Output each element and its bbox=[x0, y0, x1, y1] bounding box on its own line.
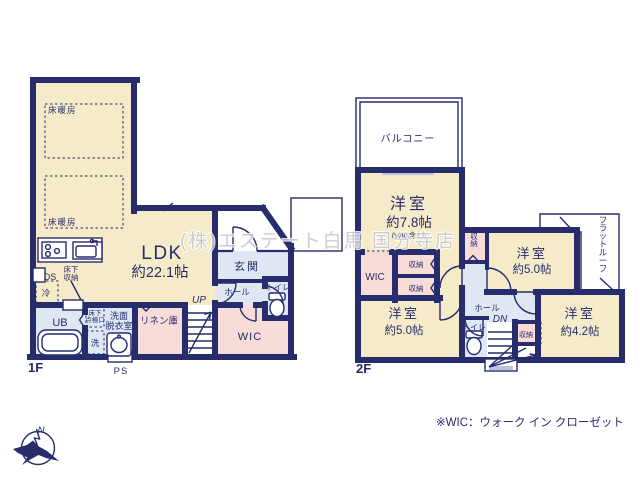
label-underfloor-storage-2: 収納 bbox=[64, 272, 79, 282]
label-linen: リネン庫 bbox=[140, 315, 179, 327]
kitchen-counter bbox=[38, 238, 102, 262]
label-ldk-size: 約22.1帖 bbox=[131, 264, 188, 281]
label-room42-size: 約4.2帖 bbox=[561, 324, 600, 338]
label-washroom-2: 脱衣室 bbox=[105, 320, 132, 331]
label-hall-1f: ホール bbox=[224, 287, 250, 297]
label-genkan: 玄関 bbox=[234, 259, 260, 273]
label-fridge: 冷 bbox=[42, 288, 51, 298]
washbasin-icon bbox=[107, 333, 131, 356]
label-1f: 1F bbox=[28, 360, 43, 375]
label-washer: 洗 bbox=[91, 338, 100, 348]
label-room50a-size: 約5.0帖 bbox=[513, 262, 552, 276]
label-ub: UB bbox=[52, 317, 67, 329]
label-ldk: LDK bbox=[141, 243, 182, 264]
label-toilet-1f: トイレ bbox=[266, 283, 290, 292]
compass-bird bbox=[13, 441, 59, 466]
compass-icon: N bbox=[13, 425, 59, 465]
label-room78-size: 約7.8帖 bbox=[386, 215, 432, 230]
label-room50a: 洋室 bbox=[516, 246, 547, 261]
room-linen bbox=[135, 305, 185, 357]
underfloor-storage-hatch bbox=[63, 300, 83, 310]
label-inspection-1: 床下 bbox=[89, 308, 103, 317]
watermark: (株)エステート白馬 国分寺店 bbox=[180, 230, 456, 252]
label-balcony: バルコニー bbox=[381, 133, 436, 145]
label-inspection-2: 点検口 bbox=[85, 315, 105, 324]
label-ds: DS bbox=[44, 272, 57, 282]
room-50a bbox=[487, 230, 577, 292]
label-2f: 2F bbox=[356, 361, 371, 376]
floor-plan-drawing: 床暖房 床暖房 LDK 約22.1帖 DS 床下 収納 冷 UB 床下 点検口 … bbox=[0, 0, 640, 480]
legend-note: ※WIC：ウォーク イン クローゼット bbox=[436, 416, 624, 429]
label-stairs-up: UP bbox=[192, 295, 206, 306]
label-washroom-1: 洗面 bbox=[110, 310, 128, 321]
compass-north-label: N bbox=[38, 425, 45, 436]
bathtub-icon bbox=[38, 330, 82, 355]
label-wic-1f: WIC bbox=[238, 331, 262, 343]
label-storage-c: 収納 bbox=[470, 232, 478, 248]
floor-plan-page: 床暖房 床暖房 LDK 約22.1帖 DS 床下 収納 冷 UB 床下 点検口 … bbox=[0, 0, 640, 480]
label-floor-heating-2: 床暖房 bbox=[48, 217, 77, 227]
label-flat-roof: フラットルーフ bbox=[599, 215, 608, 273]
label-room50b: 洋室 bbox=[388, 306, 419, 321]
label-room50b-size: 約5.0帖 bbox=[385, 323, 424, 337]
toilet-1f-icon bbox=[269, 293, 285, 317]
label-room42: 洋室 bbox=[564, 306, 595, 321]
label-toilet-2f: トイレ bbox=[462, 323, 486, 332]
label-storage-b: 収納 bbox=[409, 283, 424, 293]
label-hall-2f: ホール bbox=[474, 303, 500, 313]
label-storage-a: 収納 bbox=[409, 259, 424, 269]
label-storage-d: 収納 bbox=[519, 330, 533, 339]
label-stairs-down: DN bbox=[493, 314, 508, 325]
toilet-2f-icon bbox=[466, 331, 482, 355]
label-room78: 洋室 bbox=[390, 195, 428, 213]
label-ps: PS bbox=[114, 366, 129, 377]
label-wic-2f: WIC bbox=[365, 272, 384, 283]
label-floor-heating-1: 床暖房 bbox=[48, 105, 77, 115]
